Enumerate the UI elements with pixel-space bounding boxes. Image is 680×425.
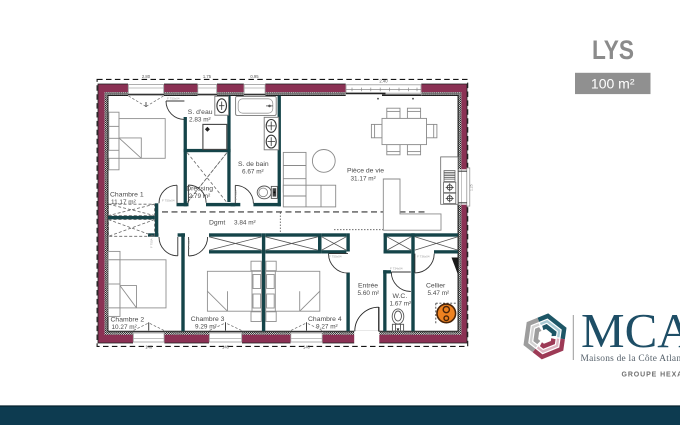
svg-text:F 750x04: F 750x04 [329,255,342,259]
svg-text:MCA: MCA [581,303,680,358]
svg-text:10.27 m²: 10.27 m² [112,324,137,331]
svg-text:F 750A: F 750A [187,239,191,249]
svg-text:S. de bain: S. de bain [238,161,269,168]
svg-text:Maisons de la Côte Atlantique: Maisons de la Côte Atlantique [581,354,680,364]
svg-text:F 750A: F 750A [150,238,154,248]
svg-text:F 750x04: F 750x04 [162,199,175,203]
svg-text:140: 140 [222,345,230,350]
svg-text:2.80: 2.80 [142,74,151,79]
svg-text:5.47 m²: 5.47 m² [428,290,450,297]
svg-text:S. d'eau: S. d'eau [188,109,213,116]
svg-text:LYS: LYS [592,35,634,65]
svg-text:31.17 m²: 31.17 m² [351,175,376,182]
svg-text:Chambre 3: Chambre 3 [191,316,225,323]
svg-text:5.60 m²: 5.60 m² [358,290,380,297]
svg-text:F 750x04: F 750x04 [167,97,180,101]
svg-text:Cellier: Cellier [426,282,446,289]
svg-text:0.95: 0.95 [250,74,259,79]
svg-text:1.25: 1.25 [469,184,473,191]
svg-text:Chambre 4: Chambre 4 [308,316,342,323]
svg-text:Entrée: Entrée [358,282,378,289]
svg-text:Chambre 2: Chambre 2 [111,316,145,323]
svg-text:3.84 m²: 3.84 m² [234,220,256,227]
svg-text:2.83 m²: 2.83 m² [189,116,211,123]
svg-text:Dgmt: Dgmt [209,220,225,227]
svg-text:1.75: 1.75 [203,74,212,79]
svg-text:100 m²: 100 m² [591,76,635,92]
svg-text:1.67 m²: 1.67 m² [390,301,412,308]
svg-text:2.79 m²: 2.79 m² [189,193,211,200]
svg-text:Chambre 1: Chambre 1 [110,192,144,199]
svg-text:Dressing: Dressing [186,185,213,192]
svg-text:9.29 m²: 9.29 m² [195,323,217,330]
svg-text:2.40: 2.40 [379,79,388,84]
svg-text:Pièce de vie: Pièce de vie [347,167,384,174]
svg-text:140: 140 [145,345,153,350]
svg-text:6.67 m²: 6.67 m² [242,169,264,176]
svg-text:11.17 m²: 11.17 m² [111,199,136,206]
svg-text:F 734x04: F 734x04 [390,267,403,271]
svg-text:140: 140 [303,345,311,350]
svg-text:F 750A: F 750A [234,190,238,200]
svg-text:9.27 m²: 9.27 m² [316,323,338,330]
svg-text:F 736x04: F 736x04 [417,255,430,259]
svg-text:GROUPE HEXAÔM: GROUPE HEXAÔM [622,369,680,378]
svg-text:W.C.: W.C. [393,293,408,300]
